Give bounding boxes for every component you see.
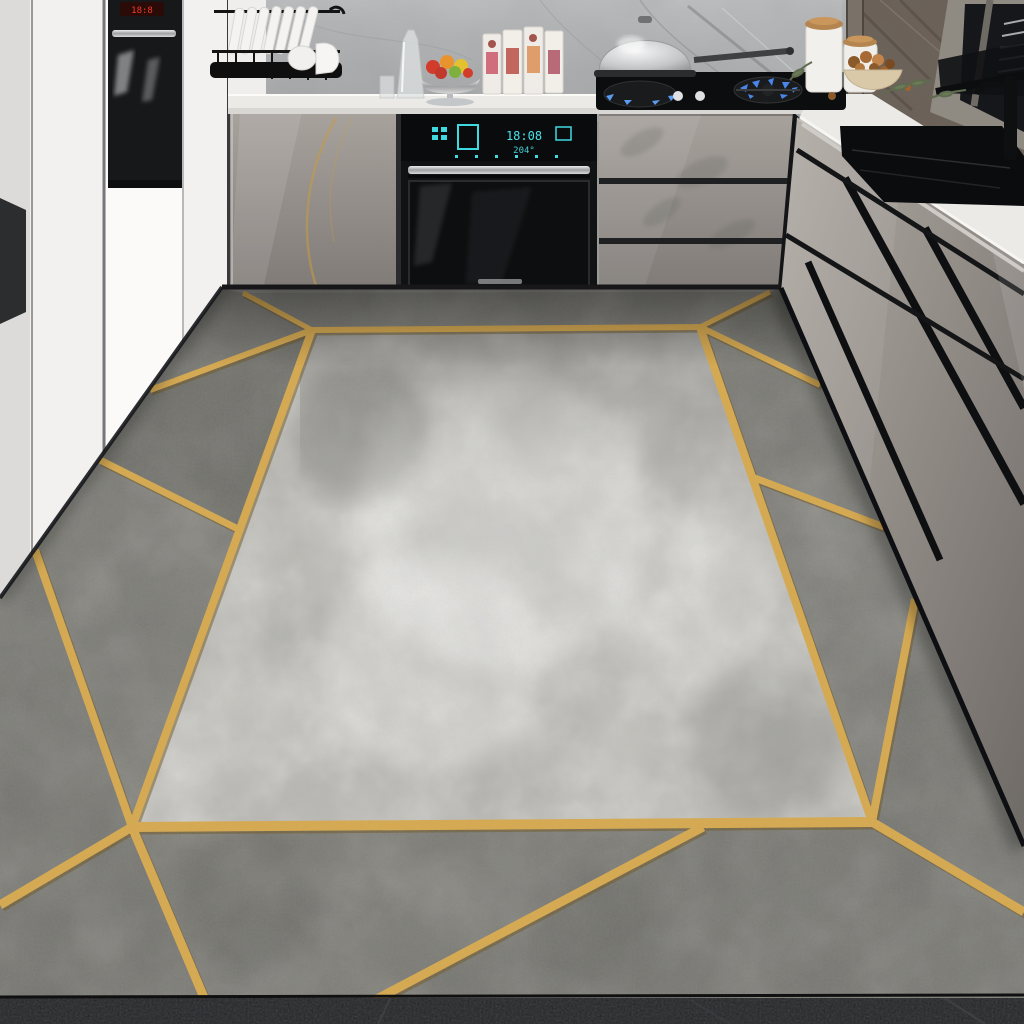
- back-drawer-stack: [599, 112, 793, 295]
- kitchen-scene-svg: 18:8 18:08 204°: [0, 0, 1024, 1024]
- rug-front-edge: [0, 995, 1024, 997]
- tall-oven-display: 18:8: [131, 6, 153, 16]
- oven-display-time: 18:08: [506, 129, 542, 143]
- drawer-gap: [599, 178, 793, 184]
- lower-left-appliance: [0, 198, 26, 324]
- left-burner: [604, 81, 676, 107]
- tall-built-in-oven: 18:8: [108, 0, 182, 188]
- glass-cup: [380, 76, 394, 98]
- lid-knob: [638, 16, 652, 23]
- white-kettle: [316, 43, 339, 74]
- hob-knob: [695, 91, 705, 101]
- oven-handle: [408, 166, 590, 174]
- hob-knob: [673, 91, 683, 101]
- black-faucet: [1004, 76, 1017, 160]
- built-in-wall-oven: 18:08 204°: [401, 113, 597, 295]
- drawer-gap: [599, 238, 793, 244]
- tall-oven-handle: [112, 30, 176, 37]
- oven-brand-badge: [478, 279, 522, 284]
- kitchen-photo: 18:8 18:08 204°: [0, 0, 1024, 1024]
- left-gloss-door: [230, 112, 401, 294]
- white-cup: [288, 46, 316, 70]
- oven-display-temp: 204°: [513, 146, 535, 156]
